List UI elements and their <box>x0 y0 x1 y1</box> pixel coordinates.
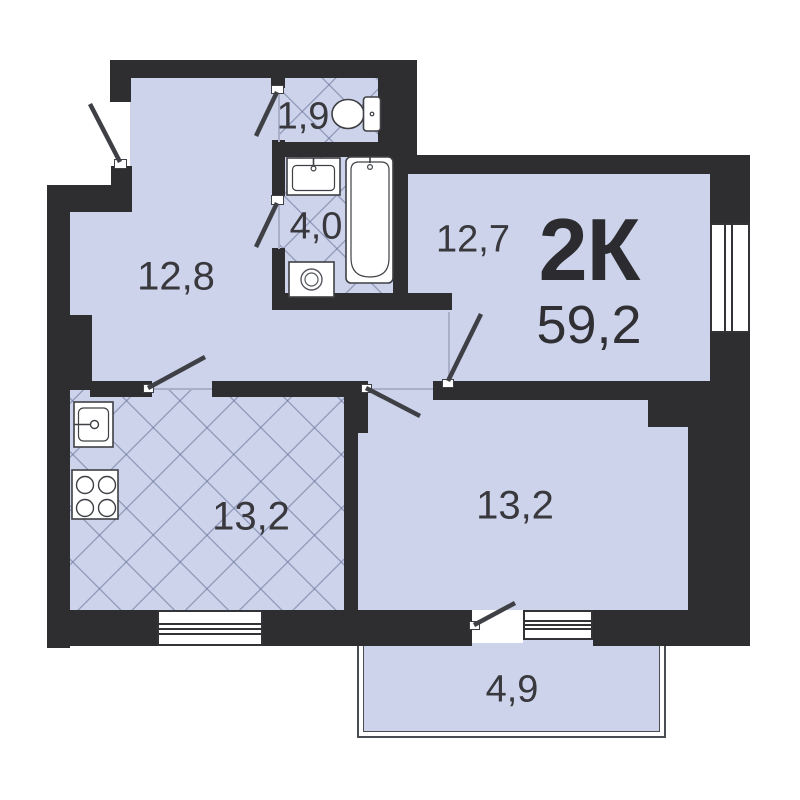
area-label-bedroom: 13,2 <box>476 484 554 529</box>
stove-icon <box>72 470 118 519</box>
apartment-type-label: 2К <box>539 199 640 301</box>
living-door-leaf <box>448 314 481 381</box>
bathtub-icon <box>346 157 393 283</box>
wash-basin-icon <box>287 158 340 195</box>
kitchen-door-leaf <box>148 357 205 388</box>
bathroom-door-leaf <box>256 203 277 247</box>
area-label-toilet: 1,9 <box>277 96 330 139</box>
area-label-bathroom: 4,0 <box>290 206 343 249</box>
entry-door-leaf <box>90 104 120 162</box>
toilet-door-leaf <box>256 92 277 136</box>
floorplan: 1,9 4,0 12,8 12,7 2К 59,2 13,2 13,2 4,9 <box>0 0 800 800</box>
plan-symbols <box>0 0 800 800</box>
area-label-balcony: 4,9 <box>486 669 539 712</box>
area-label-kitchen: 13,2 <box>212 495 290 540</box>
toilet-icon <box>332 97 381 131</box>
total-area-label: 59,2 <box>536 294 641 356</box>
bedroom-door-leaf <box>366 388 420 416</box>
balcony-door-leaf <box>474 603 515 625</box>
area-label-hallway: 12,8 <box>137 255 215 300</box>
area-label-living: 12,7 <box>436 219 510 262</box>
kitchen-sink-icon <box>74 402 113 447</box>
washing-machine-icon <box>289 262 334 297</box>
